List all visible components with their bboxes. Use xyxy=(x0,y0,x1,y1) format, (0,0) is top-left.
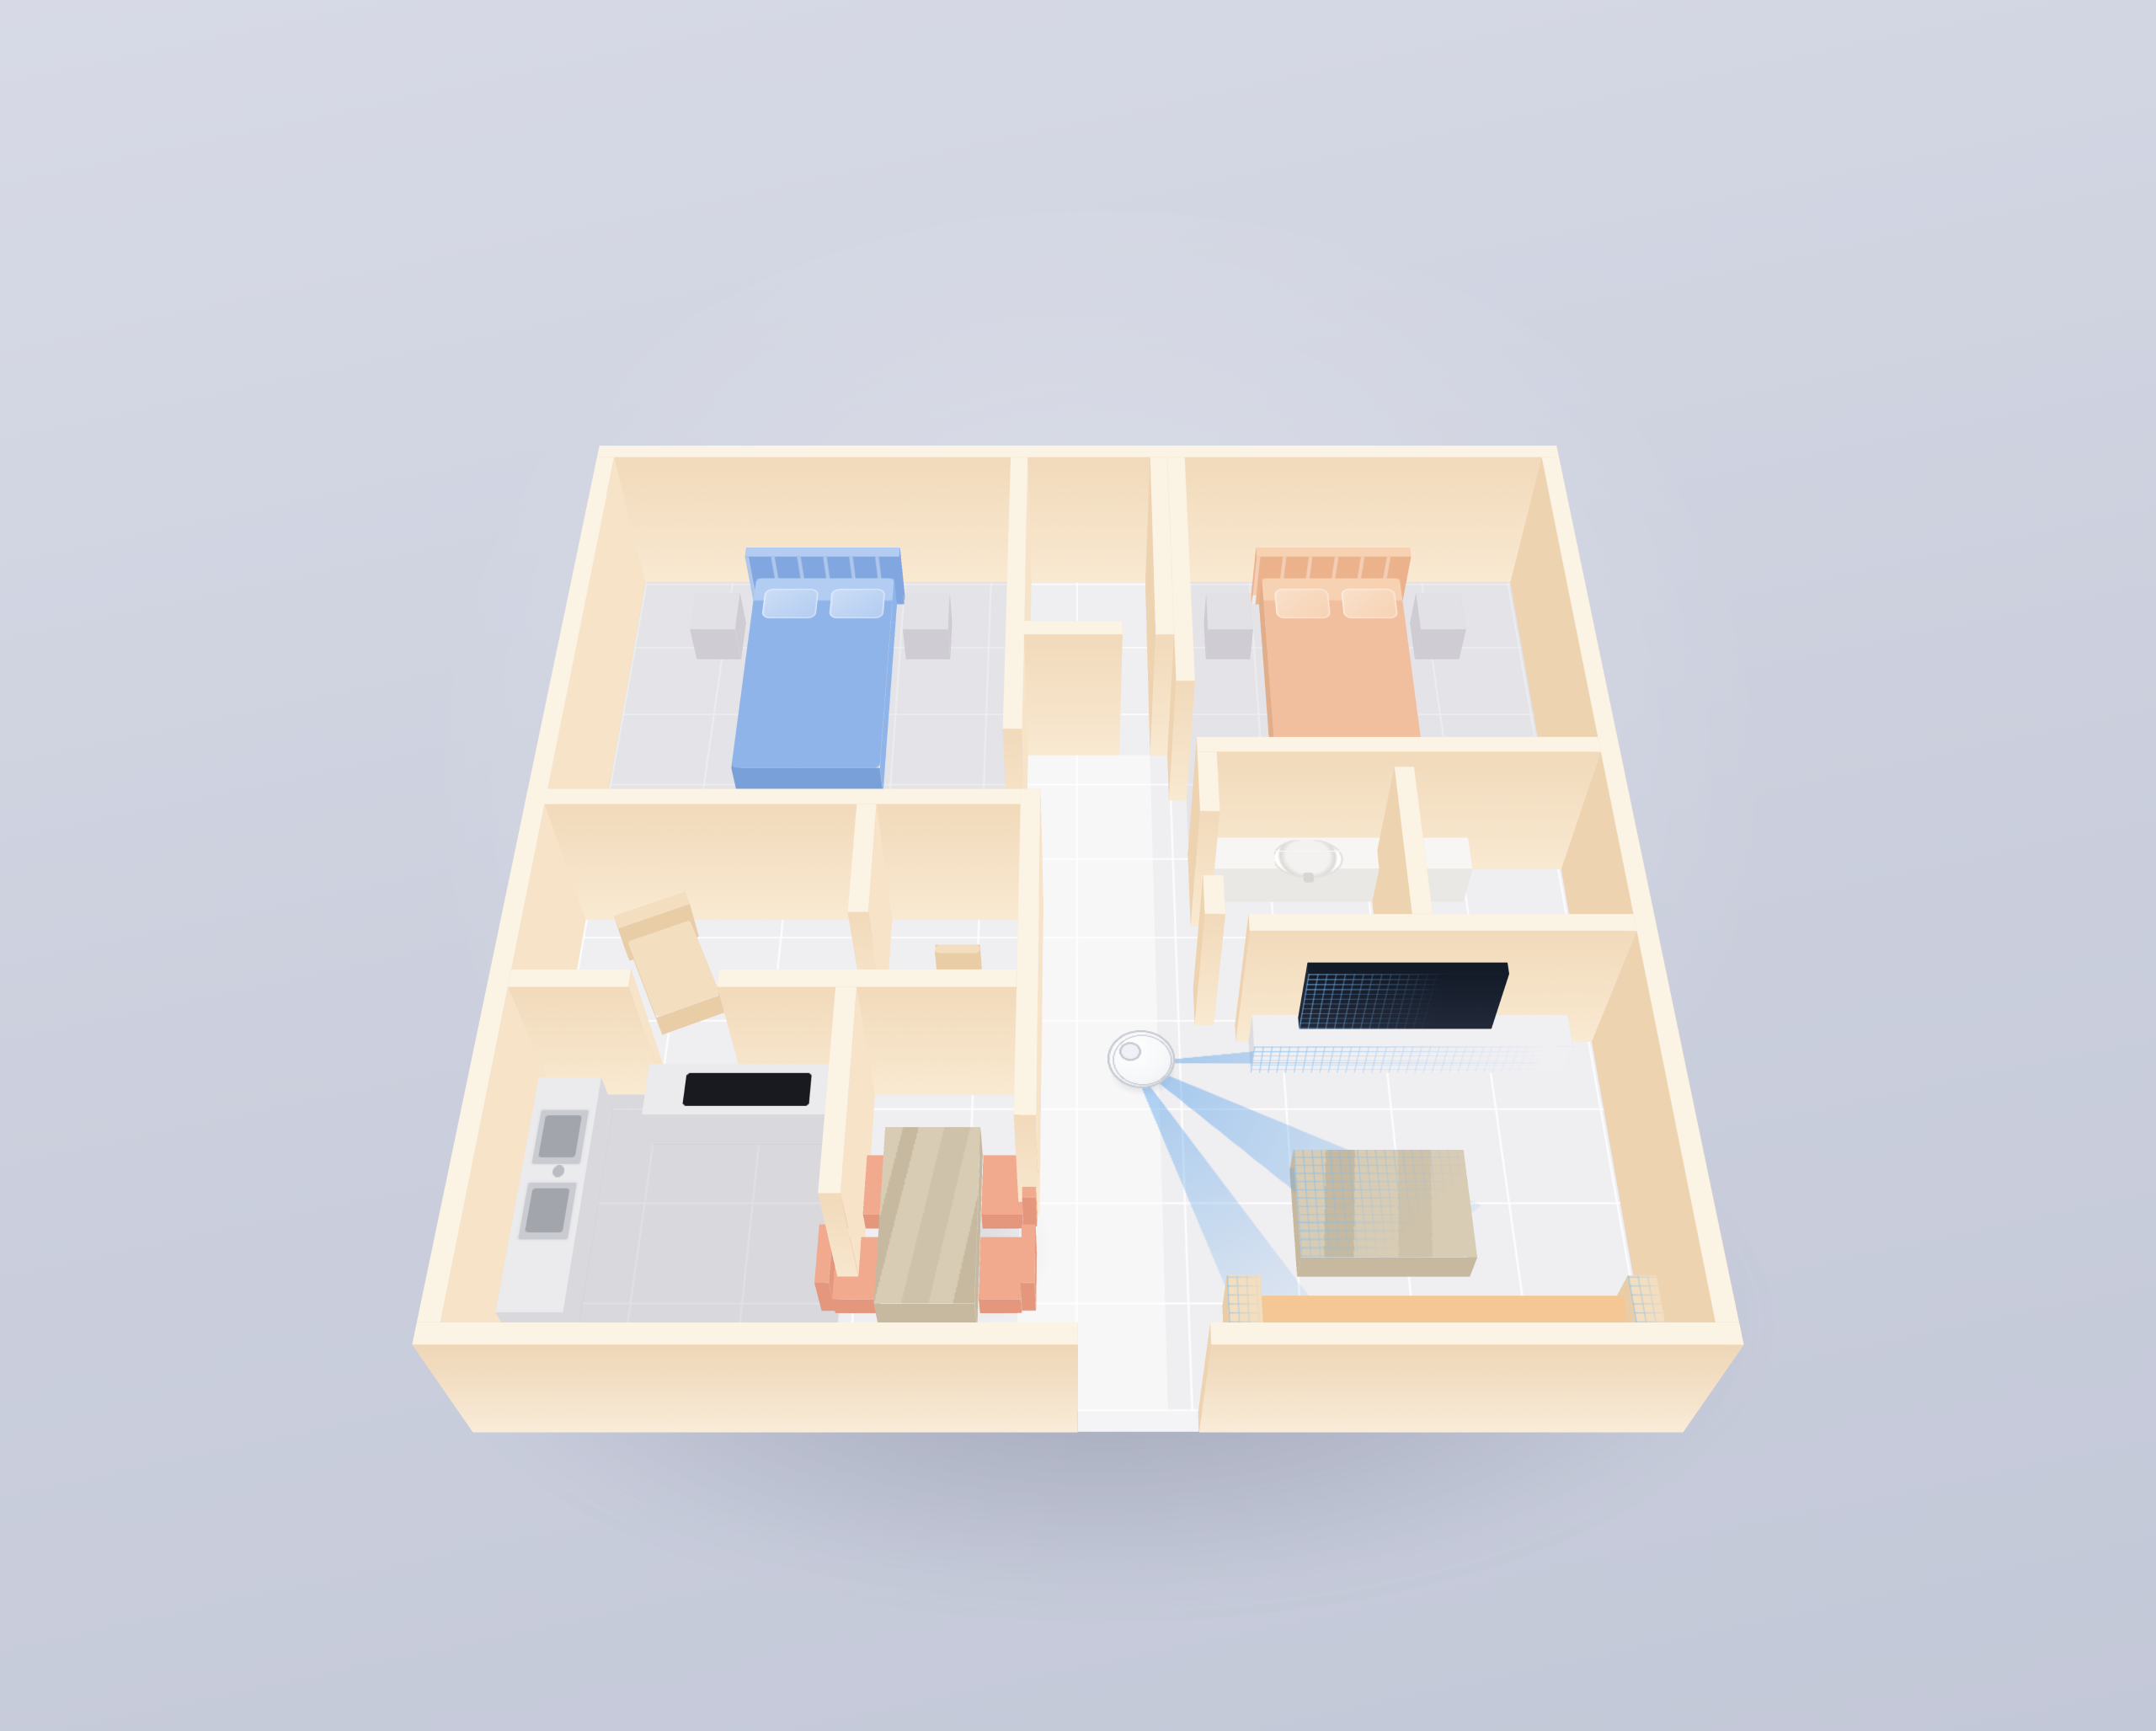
dining-chair-4-seat-south xyxy=(979,1300,1022,1313)
outer-wall-top-top xyxy=(597,446,1559,457)
bed-orange-pillow-left xyxy=(1274,589,1331,618)
front-wall-right-top xyxy=(1210,1322,1744,1345)
kitchen-top-wall-a-top xyxy=(508,970,632,987)
kitchen-top-wall-b-top xyxy=(718,970,1017,987)
bed-blue-nightstand-right-south xyxy=(903,629,950,660)
bathroom-faucet xyxy=(1303,873,1314,883)
apartment-model xyxy=(473,571,1684,1433)
lidar-scan-grid xyxy=(1294,1150,1477,1258)
dining-chair-4-seat-top xyxy=(979,1237,1022,1300)
coffee-table-top xyxy=(1294,1150,1477,1258)
bathroom-top-wall-top xyxy=(1197,737,1601,752)
dining-table-top xyxy=(874,1127,981,1304)
tv-console-south xyxy=(1251,1046,1573,1072)
bed-blue-nightstand-left-south xyxy=(690,629,741,660)
bed-orange-pillow-right xyxy=(1341,589,1398,618)
closet-bottom-wall-south xyxy=(1024,634,1123,756)
tv-south xyxy=(1299,974,1509,1028)
bed-blue-nightstand-right-top xyxy=(903,593,950,629)
lidar-scan-grid xyxy=(1251,1046,1573,1072)
bedroom-blue-bottom-wall-top xyxy=(525,788,1021,804)
page: { "meta": { "title": "3D isometric apart… xyxy=(0,0,2156,1731)
kitchen-counter-run-south xyxy=(642,1114,851,1145)
bathroom-bottom-wall-top xyxy=(1249,914,1637,931)
bed-blue-headboard-top xyxy=(744,548,899,557)
coffee-table-south xyxy=(1297,1258,1477,1277)
bed-orange-nightstand-right-top xyxy=(1416,593,1466,629)
tv-top xyxy=(1308,963,1510,974)
bed-blue-nightstand-left-top xyxy=(690,593,740,629)
outer-wall-top-south xyxy=(597,457,1559,583)
bed-blue-pillow-left xyxy=(761,589,819,618)
bed-orange-nightstand-right-south xyxy=(1415,629,1466,660)
floorplan-render xyxy=(0,0,2156,1731)
front-wall-left-top xyxy=(412,1322,1078,1345)
robot-vacuum-lidar-turret xyxy=(1119,1042,1141,1061)
bed-blue-pillow-right xyxy=(829,589,885,618)
bathroom-left-wall-a-top xyxy=(1198,751,1220,811)
bathroom-vanity-top xyxy=(1211,837,1472,868)
dining-chair-3-seat-south xyxy=(981,1214,1023,1228)
dining-chair-4-back-top xyxy=(1021,1225,1036,1283)
bed-orange-headboard-top xyxy=(1256,548,1411,557)
robot-vacuum-body xyxy=(1107,1030,1177,1088)
closet-bottom-wall-top xyxy=(1024,621,1123,634)
lidar-scan-grid xyxy=(1299,974,1509,1028)
cooktop xyxy=(682,1073,812,1106)
bathroom-left-wall-b-top xyxy=(1203,875,1225,914)
sink-basin-top-inner xyxy=(538,1115,582,1157)
bedroom-blue-bottom-wall-south xyxy=(525,804,1025,920)
desk-chair-back-top xyxy=(935,944,980,953)
front-wall-left-south xyxy=(412,1344,1078,1432)
bed-orange-nightstand-left-south xyxy=(1206,629,1253,660)
sink-basin-bottom-inner xyxy=(525,1189,570,1233)
bed-orange-nightstand-left-top xyxy=(1206,593,1253,629)
front-wall-right-south xyxy=(1199,1344,1744,1432)
dining-chair-4-back-south xyxy=(1021,1283,1036,1311)
bathroom-vanity-south xyxy=(1210,868,1473,901)
floor-entry-strip xyxy=(1078,1411,1199,1432)
robot-vacuum-ring xyxy=(1113,1035,1172,1086)
dining-chair-2-seat-south xyxy=(832,1300,878,1313)
